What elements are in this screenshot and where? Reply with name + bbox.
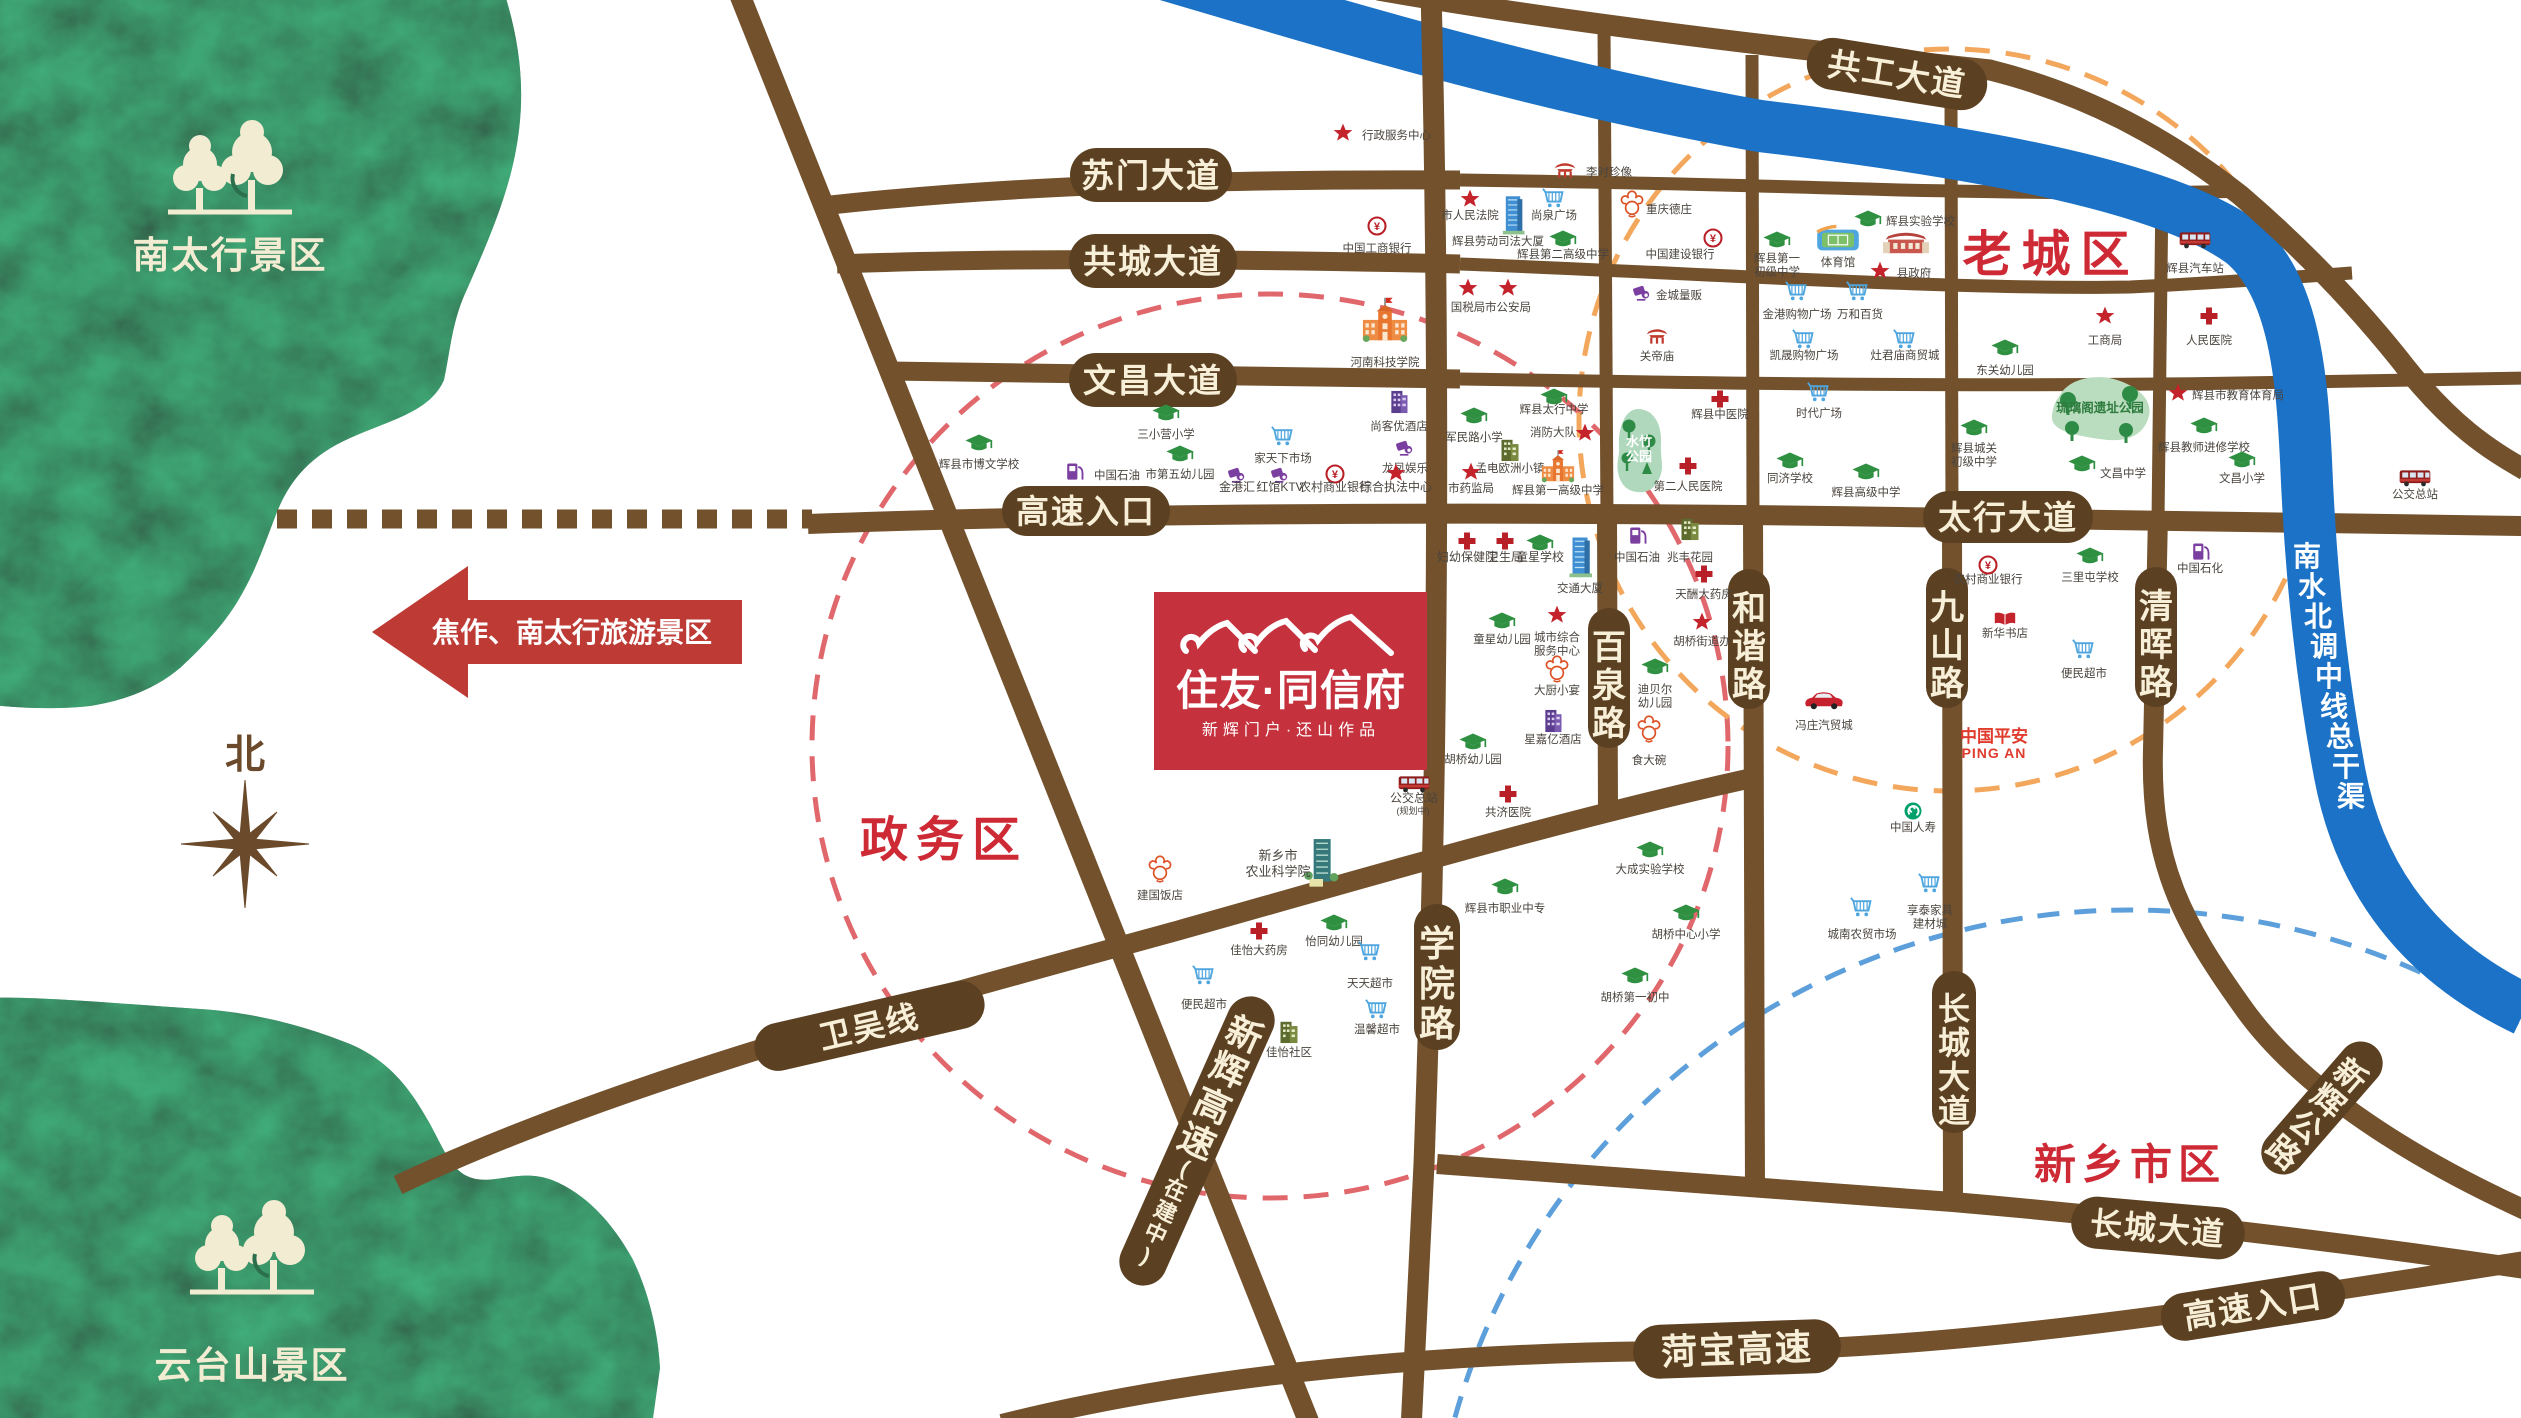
svg-text:中国平安: 中国平安 (1960, 726, 2028, 746)
svg-text:新华书店: 新华书店 (1982, 626, 2028, 640)
svg-text:共城大道: 共城大道 (1083, 243, 1223, 280)
svg-text:中国石油: 中国石油 (1614, 550, 1660, 564)
svg-text:辉县教师进修学校: 辉县教师进修学校 (2158, 440, 2250, 454)
svg-text:天天超市: 天天超市 (1347, 976, 1393, 990)
svg-text:中国人寿: 中国人寿 (1890, 820, 1936, 834)
svg-text:琉璃阁遗址公园: 琉璃阁遗址公园 (2056, 400, 2144, 415)
svg-text:金城量贩: 金城量贩 (1656, 288, 1702, 302)
svg-text:公交总站: 公交总站 (1390, 790, 1438, 805)
svg-text:重庆德庄: 重庆德庄 (1646, 202, 1692, 216)
svg-text:干: 干 (2332, 751, 2360, 782)
svg-text:菏宝高速: 菏宝高速 (1660, 1326, 1813, 1372)
svg-text:金港汇: 金港汇 (1219, 479, 1255, 494)
svg-text:新乡市区: 新乡市区 (2034, 1141, 2226, 1188)
svg-text:市人民法院: 市人民法院 (1441, 208, 1499, 222)
svg-text:凯晟购物广场: 凯晟购物广场 (1770, 348, 1839, 362)
svg-text:辉县第一高级中学: 辉县第一高级中学 (1512, 483, 1604, 497)
svg-text:佳怡社区: 佳怡社区 (1266, 1045, 1312, 1059)
svg-text:中国建设银行: 中国建设银行 (1646, 247, 1715, 261)
svg-text:孟电欧洲小镇: 孟电欧洲小镇 (1476, 461, 1545, 475)
svg-text:幼儿园: 幼儿园 (1638, 697, 1673, 710)
svg-text:龙凤娱乐: 龙凤娱乐 (1382, 461, 1428, 475)
svg-text:县政府: 县政府 (1897, 266, 1932, 280)
svg-text:调: 调 (2310, 631, 2338, 662)
svg-text:东关幼儿园: 东关幼儿园 (1976, 363, 2034, 377)
svg-text:苏门大道: 苏门大道 (1081, 157, 1221, 194)
svg-text:和: 和 (1732, 590, 1766, 628)
svg-text:北: 北 (225, 733, 265, 777)
svg-text:三里屯学校: 三里屯学校 (2061, 570, 2119, 584)
svg-text:大厨小宴: 大厨小宴 (1534, 683, 1580, 697)
svg-text:迪贝尔: 迪贝尔 (1638, 682, 1673, 696)
svg-text:红馆KTV: 红馆KTV (1256, 479, 1303, 494)
svg-text:天酬大药房: 天酬大药房 (1675, 587, 1733, 601)
svg-text:李时珍像: 李时珍像 (1586, 165, 1632, 179)
svg-text:公交总站: 公交总站 (2392, 487, 2438, 501)
svg-text:建国饭店: 建国饭店 (1137, 888, 1183, 902)
svg-text:市第五幼儿园: 市第五幼儿园 (1146, 467, 1215, 481)
svg-text:山: 山 (1930, 627, 1964, 665)
svg-text:消防大队: 消防大队 (1530, 425, 1576, 439)
svg-text:路: 路 (1930, 665, 1965, 703)
svg-text:灶君庙商贸城: 灶君庙商贸城 (1871, 348, 1940, 362)
svg-text:市药监局: 市药监局 (1448, 481, 1494, 495)
svg-text:晖: 晖 (2139, 626, 2173, 664)
svg-text:道: 道 (1938, 1093, 1970, 1129)
svg-text:新辉门户·还山作品: 新辉门户·还山作品 (1202, 721, 1380, 739)
svg-text:尚泉广场: 尚泉广场 (1531, 208, 1577, 222)
svg-text:同济学校: 同济学校 (1767, 471, 1813, 485)
svg-text:星嘉亿酒店: 星嘉亿酒店 (1524, 732, 1582, 746)
svg-text:农业科学院: 农业科学院 (1245, 864, 1310, 879)
svg-text:水竹: 水竹 (1626, 434, 1652, 449)
svg-text:初级中学: 初级中学 (1754, 265, 1800, 279)
svg-text:水: 水 (2298, 571, 2327, 602)
svg-text:便民超市: 便民超市 (2061, 666, 2107, 680)
svg-text:大成实验学校: 大成实验学校 (1616, 862, 1685, 876)
svg-text:路: 路 (1419, 1003, 1456, 1044)
svg-text:清: 清 (2139, 588, 2173, 626)
svg-text:泉: 泉 (1592, 667, 1626, 705)
svg-text:PING AN: PING AN (1962, 745, 2027, 761)
svg-text:时代广场: 时代广场 (1796, 406, 1842, 420)
svg-text:第二人民医院: 第二人民医院 (1654, 479, 1723, 493)
svg-text:城: 城 (1938, 1025, 1970, 1061)
svg-text:住友·同信府: 住友·同信府 (1176, 667, 1406, 714)
svg-text:佳怡大药房: 佳怡大药房 (1230, 943, 1288, 957)
svg-text:文昌中学: 文昌中学 (2100, 466, 2146, 480)
svg-text:文昌小学: 文昌小学 (2219, 471, 2265, 485)
svg-text:建材城: 建材城 (1913, 917, 1948, 931)
svg-text:九: 九 (1930, 589, 1964, 627)
svg-text:新乡市: 新乡市 (1258, 848, 1297, 863)
svg-text:童星幼儿园: 童星幼儿园 (1473, 632, 1531, 646)
svg-text:温馨超市: 温馨超市 (1354, 1022, 1400, 1036)
svg-text:长: 长 (1938, 991, 1970, 1027)
svg-text:初级中学: 初级中学 (1951, 455, 1997, 469)
svg-text:线: 线 (2320, 691, 2348, 722)
svg-text:综合执法中心: 综合执法中心 (1360, 479, 1432, 494)
svg-text:渠: 渠 (2337, 781, 2365, 812)
svg-text:学: 学 (1419, 923, 1455, 964)
svg-text:辉县第一: 辉县第一 (1754, 251, 1800, 265)
svg-text:大: 大 (1938, 1059, 1970, 1095)
svg-text:军民路小学: 军民路小学 (1445, 430, 1503, 444)
svg-text:云台山景区: 云台山景区 (155, 1345, 350, 1386)
svg-text:总: 总 (2326, 721, 2354, 752)
svg-text:焦作、南太行旅游景区: 焦作、南太行旅游景区 (432, 616, 712, 648)
svg-text:北: 北 (2304, 601, 2332, 632)
svg-text:辉县太行中学: 辉县太行中学 (1520, 402, 1589, 416)
svg-text:童星学校: 童星学校 (1516, 549, 1564, 564)
svg-text:胡桥中心小学: 胡桥中心小学 (1652, 927, 1721, 941)
svg-text:院: 院 (1419, 963, 1455, 1004)
svg-text:中: 中 (2315, 661, 2343, 692)
svg-text:金港购物广场: 金港购物广场 (1763, 307, 1832, 321)
svg-text:辉县实验学校: 辉县实验学校 (1886, 214, 1955, 228)
svg-text:城南农贸市场: 城南农贸市场 (1828, 927, 1897, 941)
svg-text:辉县汽车站: 辉县汽车站 (2166, 261, 2224, 275)
svg-text:国税局: 国税局 (1451, 300, 1486, 314)
svg-text:家天下市场: 家天下市场 (1254, 451, 1312, 465)
svg-text:文昌大道: 文昌大道 (1083, 362, 1223, 399)
svg-text:三小营小学: 三小营小学 (1137, 427, 1195, 441)
svg-text:路: 路 (1732, 666, 1767, 704)
svg-text:高速入口: 高速入口 (1016, 493, 1156, 530)
svg-text:便民超市: 便民超市 (1181, 997, 1227, 1011)
svg-text:尚客优酒店: 尚客优酒店 (1370, 419, 1428, 433)
svg-text:市公安局: 市公安局 (1485, 300, 1531, 314)
svg-text:谐: 谐 (1732, 628, 1766, 666)
svg-text:胡桥第一初中: 胡桥第一初中 (1601, 990, 1670, 1004)
svg-text:体育馆: 体育馆 (1821, 255, 1856, 269)
svg-text:行政服务中心: 行政服务中心 (1362, 128, 1431, 142)
svg-text:冯庄汽贸城: 冯庄汽贸城 (1795, 718, 1853, 732)
svg-text:胡桥幼儿园: 胡桥幼儿园 (1444, 752, 1502, 766)
svg-text:公园: 公园 (1626, 449, 1652, 464)
svg-text:辉县市博文学校: 辉县市博文学校 (939, 457, 1020, 471)
svg-text:辉县中医院: 辉县中医院 (1691, 407, 1749, 421)
svg-text:人民医院: 人民医院 (2186, 333, 2232, 347)
svg-text:怡同幼儿园: 怡同幼儿园 (1305, 934, 1363, 948)
svg-text:万和百货: 万和百货 (1837, 307, 1883, 321)
svg-text:中国石化: 中国石化 (2177, 561, 2223, 575)
svg-text:老城区: 老城区 (1962, 228, 2139, 282)
svg-text:中国石油: 中国石油 (1094, 468, 1140, 482)
svg-text:辉县高级中学: 辉县高级中学 (1832, 485, 1901, 499)
svg-text:太行大道: 太行大道 (1938, 499, 2078, 536)
svg-text:工商局: 工商局 (2088, 333, 2123, 347)
svg-text:中国工商银行: 中国工商银行 (1343, 241, 1412, 255)
svg-text:辉县市职业中专: 辉县市职业中专 (1465, 901, 1546, 915)
svg-text:共济医院: 共济医院 (1485, 805, 1531, 819)
svg-text:享泰家具: 享泰家具 (1907, 903, 1953, 917)
svg-text:(规划中): (规划中) (1397, 805, 1430, 816)
svg-text:路: 路 (2139, 664, 2174, 702)
svg-text:农村商业银行: 农村商业银行 (1954, 572, 2023, 586)
svg-text:兆丰花园: 兆丰花园 (1667, 551, 1713, 564)
svg-text:南: 南 (2293, 541, 2321, 572)
svg-text:政务区: 政务区 (860, 814, 1028, 867)
svg-text:百: 百 (1592, 629, 1626, 667)
svg-text:辉县劳动司法大厦: 辉县劳动司法大厦 (1452, 234, 1544, 248)
svg-text:胡桥街道办: 胡桥街道办 (1673, 634, 1731, 648)
svg-text:路: 路 (1592, 705, 1627, 743)
svg-text:交通大厦: 交通大厦 (1557, 581, 1603, 595)
svg-text:河南科技学院: 河南科技学院 (1351, 355, 1420, 369)
svg-text:关帝庙: 关帝庙 (1640, 349, 1675, 363)
svg-text:城市综合: 城市综合 (1534, 630, 1580, 644)
svg-text:南太行景区: 南太行景区 (133, 235, 328, 276)
svg-text:辉县市教育体育局: 辉县市教育体育局 (2192, 388, 2284, 402)
svg-text:辉县第二高级中学: 辉县第二高级中学 (1517, 247, 1609, 261)
svg-text:食大碗: 食大碗 (1632, 753, 1667, 767)
svg-text:辉县城关: 辉县城关 (1951, 441, 1997, 455)
